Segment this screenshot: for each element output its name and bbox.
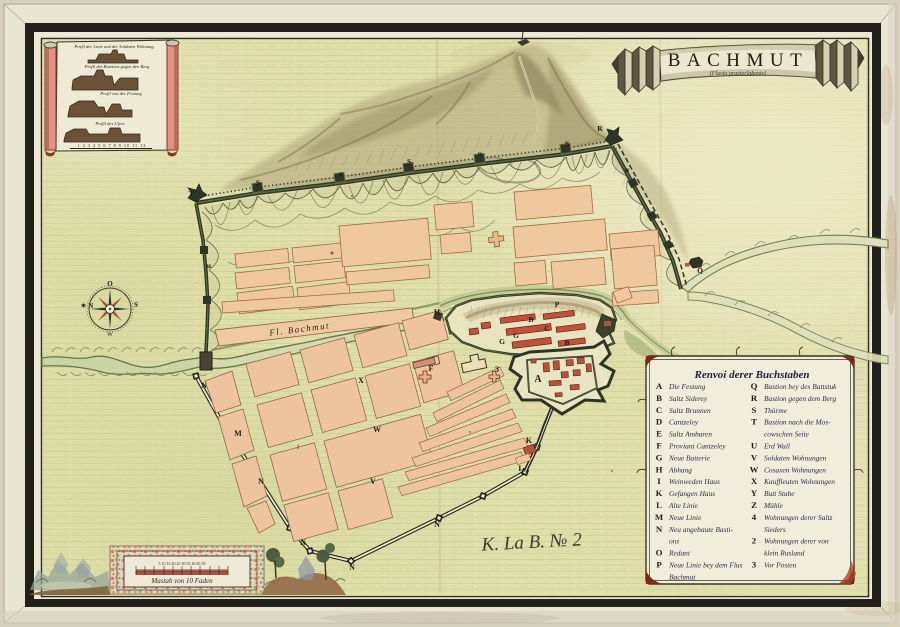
svg-text:Wohnungen derer Saltz: Wohnungen derer Saltz (764, 513, 833, 522)
svg-text:F: F (429, 364, 434, 373)
svg-text:BACHMUT: BACHMUT (668, 50, 809, 71)
svg-text:G: G (499, 337, 505, 346)
svg-text:u: u (478, 149, 482, 158)
svg-text:Cantzeley: Cantzeley (669, 418, 699, 427)
svg-text:5 10 15 20 25 30 35 40: 5 10 15 20 25 30 35 40 45 50 (159, 561, 206, 566)
svg-text:Profil der Linie und der Solda: Profil der Linie und der Soldaten Wohnun… (73, 44, 154, 49)
svg-text:Renvoi derer Buchstaben: Renvoi derer Buchstaben (694, 369, 810, 381)
svg-text:Neu angebaute Basti-: Neu angebaute Basti- (668, 525, 734, 534)
svg-text:u: u (339, 169, 343, 178)
svg-text:H: H (656, 464, 663, 474)
svg-text:Saltz Ambaren: Saltz Ambaren (669, 430, 712, 439)
svg-text:Gefangen Haus: Gefangen Haus (669, 489, 715, 498)
svg-text:Weinweden Haus: Weinweden Haus (669, 477, 720, 486)
svg-text:Vor Posten: Vor Posten (764, 561, 797, 570)
svg-text:P: P (555, 300, 560, 309)
svg-text:P: P (656, 560, 662, 570)
svg-text:V: V (751, 452, 758, 462)
svg-text:S: S (407, 157, 411, 166)
svg-text:N: N (656, 524, 663, 534)
svg-text:Mühle: Mühle (763, 501, 784, 510)
svg-text:X: X (751, 476, 758, 486)
svg-text:N: N (201, 381, 207, 390)
svg-text:I: I (657, 476, 661, 486)
svg-text:W: W (750, 464, 759, 474)
svg-text:O: O (656, 548, 663, 558)
svg-text:Bachmut: Bachmut (669, 572, 696, 581)
svg-text:N: N (434, 520, 440, 529)
svg-text:S: S (256, 178, 260, 187)
svg-text:S: S (565, 139, 569, 148)
svg-text:Saltz Siderey: Saltz Siderey (669, 394, 708, 403)
svg-text:4: 4 (752, 512, 757, 522)
svg-text:Bastion bey des Battstuk: Bastion bey des Battstuk (764, 382, 837, 391)
svg-text:F: F (656, 441, 661, 451)
svg-text:L: L (518, 464, 523, 473)
svg-text:A: A (656, 381, 663, 391)
svg-text:3: 3 (495, 365, 499, 374)
svg-text:Profil des Ufers: Profil des Ufers (94, 121, 124, 126)
svg-text:Neue Batterie: Neue Batterie (668, 453, 711, 462)
svg-text:✶ N: ✶ N (81, 302, 94, 310)
svg-text:U: U (751, 441, 758, 451)
svg-text:M: M (655, 512, 664, 522)
svg-text:C: C (544, 324, 549, 333)
svg-text:M: M (234, 429, 242, 438)
svg-text:Die Festung: Die Festung (668, 382, 706, 391)
svg-text:Wohnungen derer von: Wohnungen derer von (764, 537, 829, 546)
svg-text:Bastion nach die Mos-: Bastion nach die Mos- (764, 418, 831, 427)
svg-text:R: R (751, 393, 758, 403)
svg-text:Saltz Brunnen: Saltz Brunnen (669, 406, 711, 415)
svg-text:Abhang: Abhang (668, 465, 692, 474)
svg-text:Soldaten Wohnungen: Soldaten Wohnungen (764, 453, 827, 462)
svg-text:C: C (656, 405, 662, 415)
svg-text:u: u (625, 165, 629, 174)
svg-text:(Fluvio praeterlabente): (Fluvio praeterlabente) (710, 70, 766, 77)
svg-text:Q: Q (697, 266, 703, 275)
svg-text:G: G (513, 331, 519, 340)
svg-text:Neue Linie bey dem Flus: Neue Linie bey dem Flus (668, 561, 743, 570)
svg-text:Cosaxen Wohnungen: Cosaxen Wohnungen (764, 465, 826, 474)
svg-text:Butt Stube: Butt Stube (764, 489, 795, 498)
svg-text:Profil von der Festung: Profil von der Festung (99, 91, 142, 96)
svg-text:Kauffleuten Wohnungen: Kauffleuten Wohnungen (763, 477, 835, 486)
svg-text:cowschen Seite: cowschen Seite (764, 430, 810, 439)
svg-text:Proviant Cantzeley: Proviant Cantzeley (668, 442, 726, 451)
svg-text:2: 2 (752, 536, 757, 546)
svg-text:V: V (370, 477, 376, 486)
svg-text:B: B (656, 393, 662, 403)
svg-text:H: H (434, 308, 441, 317)
svg-text:3: 3 (752, 560, 757, 570)
svg-text:u: u (207, 261, 211, 270)
svg-text:G: G (656, 452, 663, 462)
svg-text:K: K (656, 488, 663, 498)
svg-text:E: E (656, 429, 662, 439)
svg-text:Bastion gegen dem Berg: Bastion gegen dem Berg (764, 394, 836, 403)
svg-text:N: N (349, 563, 355, 572)
svg-text:N: N (258, 477, 264, 486)
svg-text:X: X (358, 376, 364, 385)
svg-text:B: B (528, 315, 533, 324)
svg-text:klein Rusland: klein Rusland (764, 549, 805, 558)
svg-text:Redant: Redant (668, 549, 691, 558)
svg-text:O: O (107, 280, 113, 288)
svg-text:Erd Wall: Erd Wall (763, 442, 790, 451)
svg-text:S: S (752, 405, 757, 415)
svg-text:Neue Linie: Neue Linie (668, 513, 702, 522)
svg-text:Sieders: Sieders (764, 525, 786, 534)
svg-text:Z: Z (751, 500, 757, 510)
svg-text:Thürme: Thürme (764, 406, 788, 415)
svg-text:W: W (373, 425, 381, 434)
svg-text:Mastab von 10 Faden: Mastab von 10 Faden (150, 577, 213, 585)
svg-text:Alte Linie: Alte Linie (668, 501, 699, 510)
svg-text:T: T (751, 417, 757, 427)
svg-text:A: A (534, 374, 542, 385)
svg-text:ons: ons (669, 537, 679, 546)
svg-text:Y: Y (751, 488, 758, 498)
svg-text:D: D (656, 417, 662, 427)
svg-text:Profil des Bastions gegen den: Profil des Bastions gegen den Berg (84, 64, 150, 69)
svg-text:T: T (188, 189, 193, 198)
svg-text:R: R (597, 124, 603, 133)
svg-text:W: W (107, 332, 113, 338)
svg-text:L: L (656, 500, 662, 510)
svg-text:N: N (300, 538, 306, 547)
svg-text:1 2 3 4 5 6 7 8 9 10 11 12: 1 2 3 4 5 6 7 8 9 10 11 12 (78, 143, 147, 148)
svg-text:S: S (134, 301, 138, 309)
svg-text:i: i (297, 443, 299, 451)
svg-text:B: B (564, 338, 569, 347)
svg-text:K: K (526, 436, 533, 445)
svg-text:Q: Q (751, 381, 758, 391)
